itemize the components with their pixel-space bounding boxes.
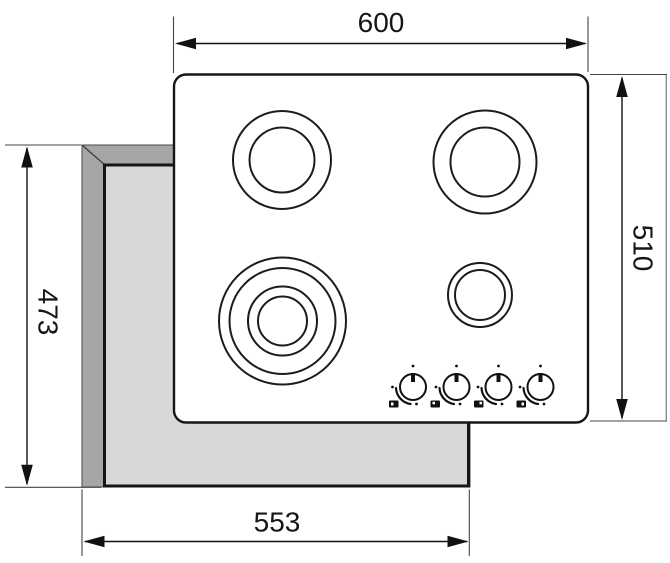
arrowhead-down bbox=[616, 399, 628, 420]
arrowhead-left bbox=[175, 38, 196, 49]
knob-dot bbox=[501, 403, 504, 406]
arrowhead-up bbox=[21, 147, 33, 168]
knob-pointer bbox=[455, 373, 459, 382]
knob-dot bbox=[415, 403, 418, 406]
knob-pointer bbox=[411, 373, 415, 382]
knob-dot bbox=[435, 386, 438, 389]
arrowhead-right bbox=[566, 38, 587, 49]
knob-dot bbox=[539, 365, 542, 368]
knob-dot bbox=[412, 365, 415, 368]
hob-dimension-diagram: 600 510 473 553 bbox=[0, 0, 670, 563]
knob-dot bbox=[459, 403, 462, 406]
knob-pointer bbox=[539, 373, 543, 382]
hob-outline bbox=[174, 75, 588, 423]
dim-cutout-width-label: 553 bbox=[254, 507, 301, 538]
knob-dot bbox=[519, 386, 522, 389]
knob-dot bbox=[543, 403, 546, 406]
hob-top bbox=[174, 75, 588, 423]
burner-position-mark bbox=[391, 403, 394, 406]
dim-width-label: 600 bbox=[358, 7, 405, 38]
burner-position-back-right-icon bbox=[474, 401, 484, 408]
arrowhead-down bbox=[21, 465, 33, 486]
burner-position-front-right-icon bbox=[517, 401, 527, 408]
knob-dot bbox=[455, 365, 458, 368]
burner-position-mark bbox=[522, 403, 525, 406]
burner-position-back-left-icon bbox=[431, 401, 441, 408]
knob-pointer bbox=[497, 373, 501, 382]
knob-dot bbox=[391, 386, 394, 389]
dim-cutout-depth-label: 473 bbox=[33, 289, 64, 336]
arrowhead-right bbox=[448, 536, 469, 547]
burner-position-mark bbox=[433, 402, 436, 405]
knob-dot bbox=[477, 386, 480, 389]
burner-position-front-left-icon bbox=[389, 401, 399, 408]
burner-position-mark bbox=[480, 402, 483, 405]
arrowhead-up bbox=[616, 76, 628, 97]
knob-dot bbox=[497, 365, 500, 368]
arrowhead-left bbox=[84, 536, 105, 547]
diagram-canvas: 600 510 473 553 bbox=[0, 0, 670, 563]
dim-cutout-width-553: 553 bbox=[82, 490, 469, 557]
dim-depth-510: 510 bbox=[590, 75, 667, 422]
dim-depth-label: 510 bbox=[628, 225, 659, 272]
dim-width-600: 600 bbox=[174, 7, 589, 73]
